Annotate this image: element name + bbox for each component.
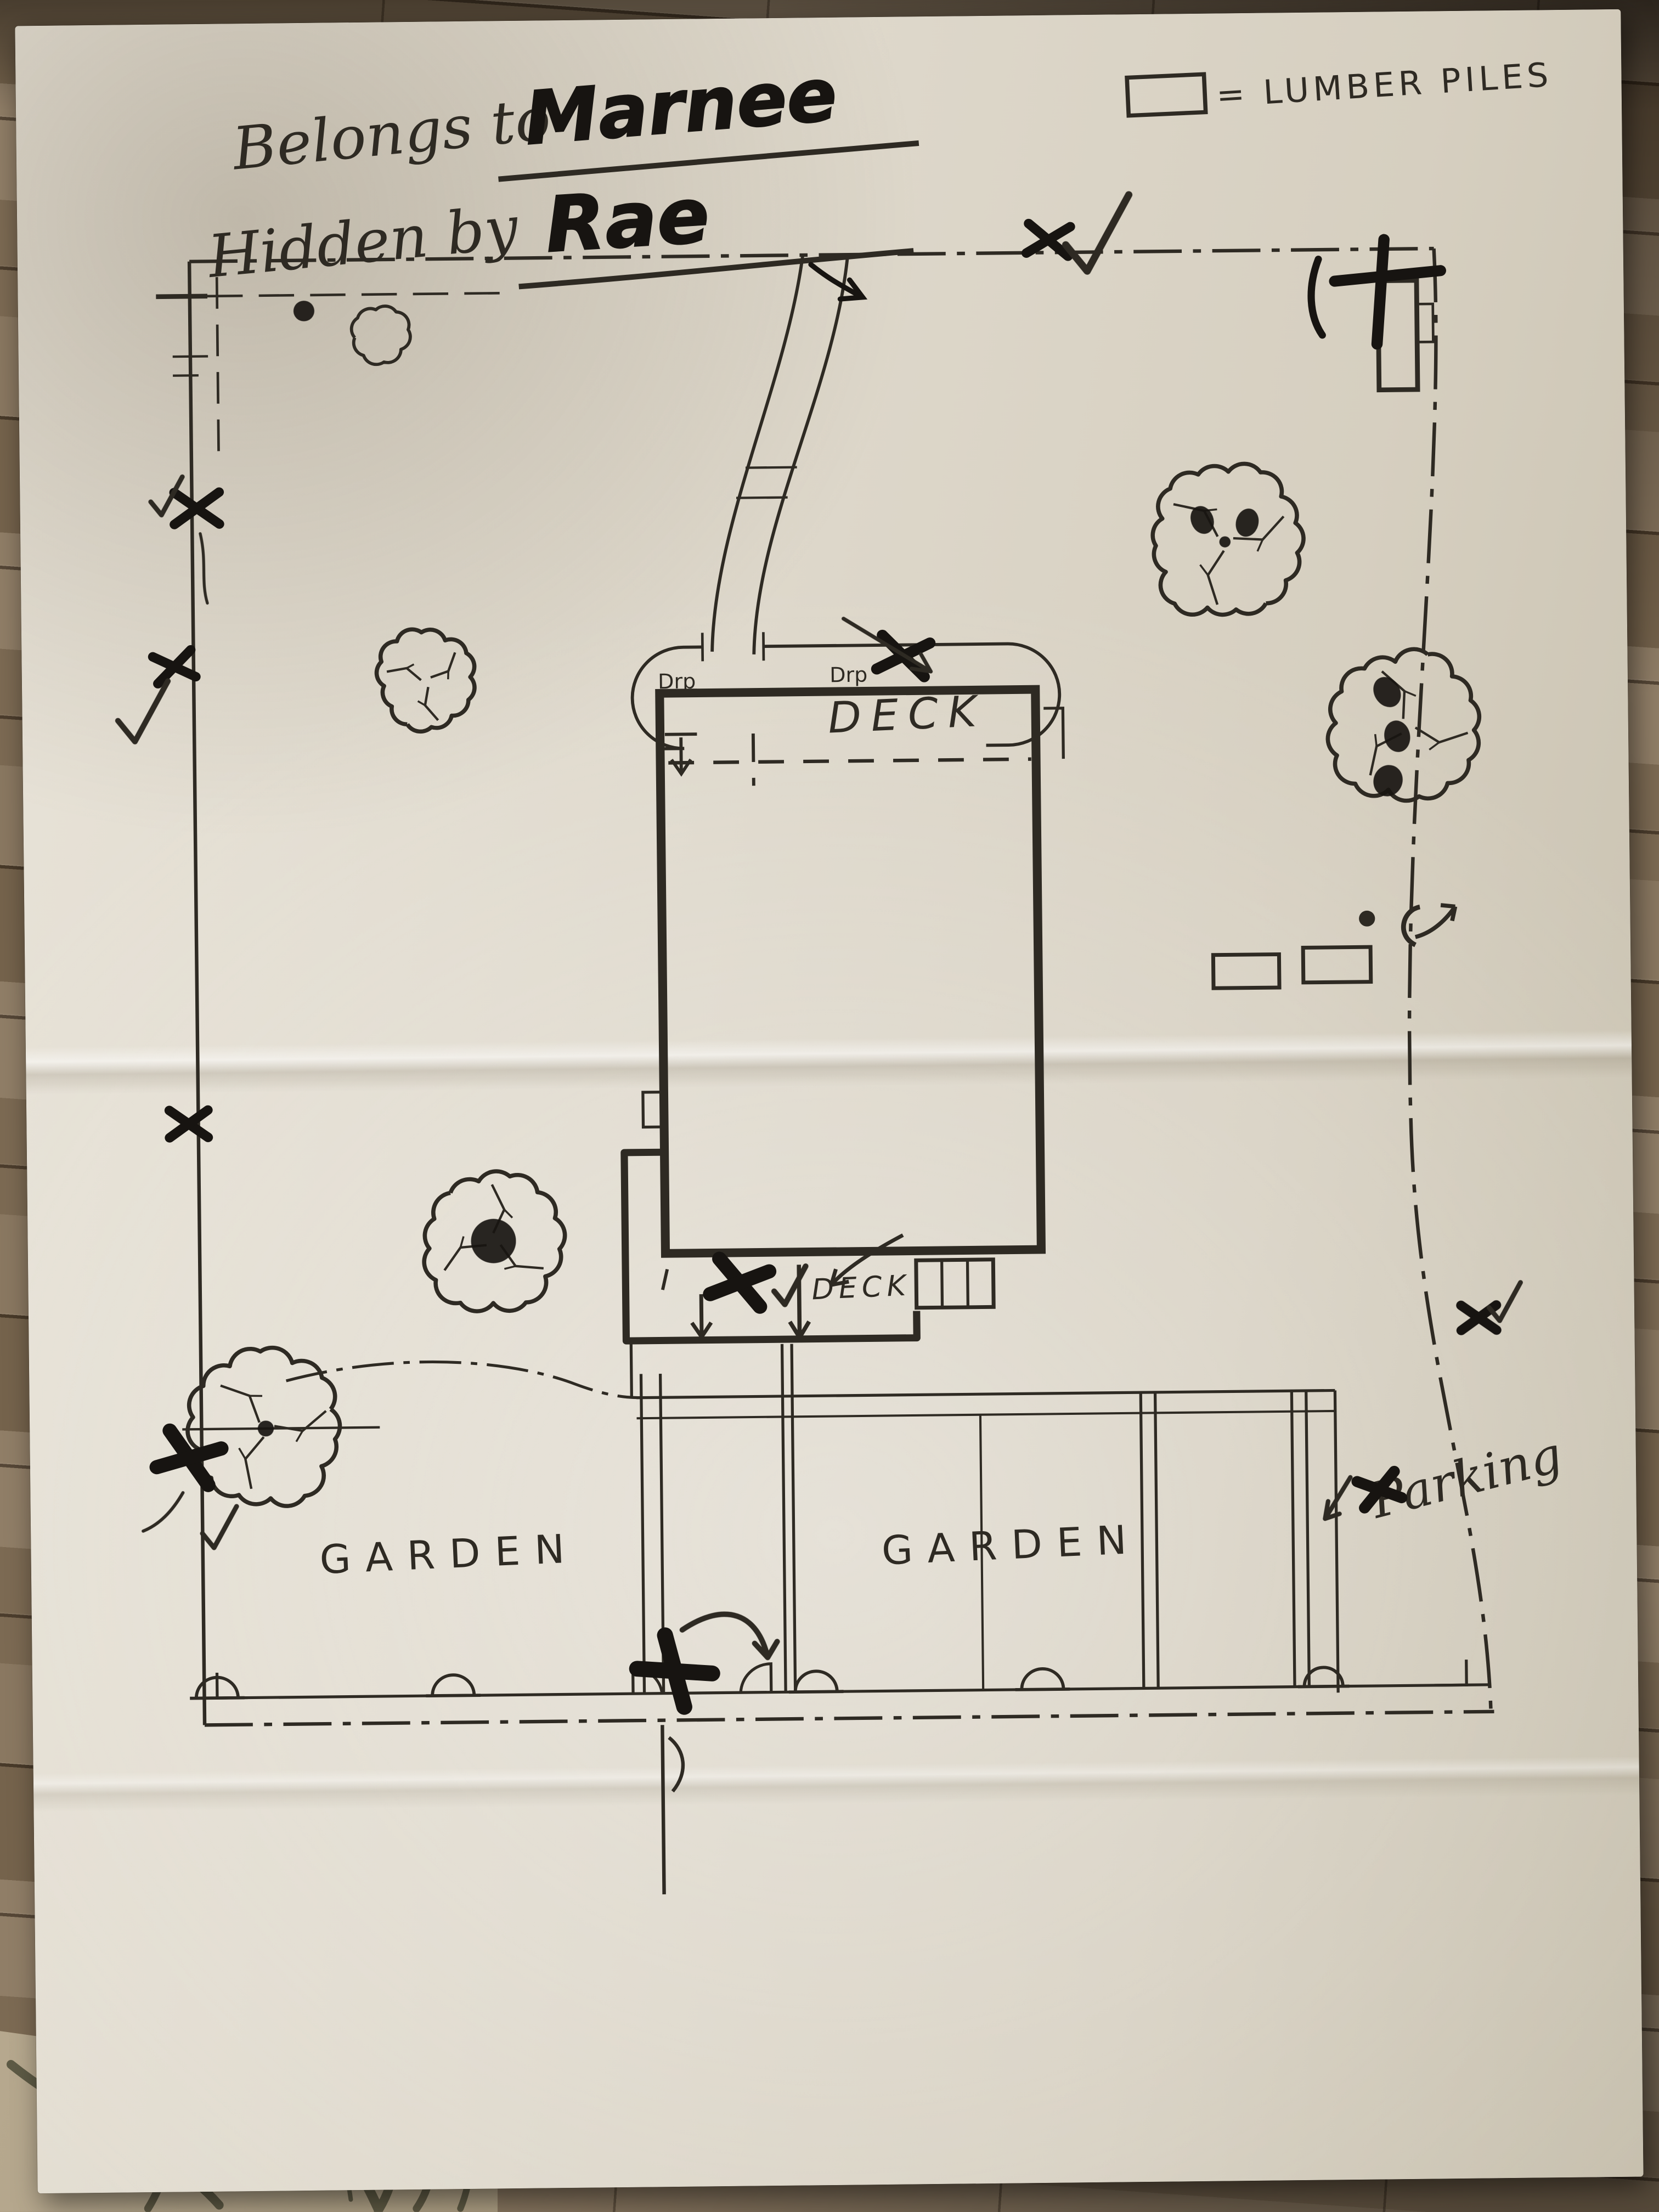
x-mark (153, 650, 196, 684)
tree-center-dot (1220, 537, 1231, 548)
path-right-edge (750, 255, 852, 654)
divider-5 (1292, 1391, 1310, 1687)
tree-blob (1233, 506, 1262, 539)
path-left-edge (708, 255, 807, 652)
lumber-pile-rect (1214, 955, 1280, 989)
path-arrow (811, 264, 862, 299)
landmark-dot (294, 301, 314, 321)
garden-left-label: GARDEN (319, 1526, 580, 1583)
corner-bracket-right (1435, 1660, 1467, 1685)
garden-beds (182, 1337, 1493, 1900)
belongs-to-text: Belongs to (229, 85, 554, 184)
property-boundary (172, 248, 1494, 1725)
deck-stairs (916, 1260, 994, 1308)
parking-left-edge (1335, 1391, 1339, 1693)
tree5-scribble (143, 1493, 184, 1531)
garden-shrub (426, 1675, 481, 1696)
tree-blob (1368, 672, 1407, 712)
inner-corner-dash-h (207, 293, 516, 296)
check-mark (774, 1266, 806, 1305)
lumber-piles-midright (1213, 905, 1457, 989)
divider-tick (753, 733, 754, 786)
deck-to-garden-line (631, 1341, 632, 1398)
marker-cross-horizontal (1335, 270, 1441, 281)
lumber-pile-topright (1311, 239, 1442, 391)
photo-of-site-plan: Belongs to Marnee Hidden by Rae = LUMBER… (0, 0, 1659, 2212)
site-plan-drawing: Belongs to Marnee Hidden by Rae = LUMBER… (15, 9, 1644, 2194)
tree (376, 629, 475, 732)
legend-label: = LUMBER PILES (1215, 55, 1554, 115)
curved-path (708, 255, 852, 654)
marker-cross-vertical (1376, 240, 1385, 344)
drop-label-2: Drp (830, 663, 868, 687)
divider-arrow (665, 734, 697, 774)
marker-hook (1311, 259, 1323, 336)
tree-blob (1382, 719, 1413, 754)
garden-shrub (1015, 1669, 1070, 1690)
check-mark (118, 681, 169, 742)
below-line-hook (669, 1737, 684, 1791)
garden-left-curve (286, 1360, 642, 1402)
x-mark (1026, 224, 1070, 257)
deck-dashed-divider (669, 759, 1032, 763)
curved-arrow (1415, 905, 1456, 937)
garden-right-label: GARDEN (881, 1517, 1142, 1574)
garden-top-line-1 (637, 1391, 1335, 1398)
x-mark (174, 492, 220, 524)
x-mark (637, 1635, 713, 1707)
door-arc-2 (741, 1664, 771, 1692)
deck-tick (663, 1269, 668, 1290)
x-mark (170, 1110, 208, 1138)
check-mark (202, 1506, 238, 1548)
site-plan-paper: Belongs to Marnee Hidden by Rae = LUMBER… (15, 9, 1644, 2194)
tree-center-dot (258, 1421, 274, 1437)
bottom-curved-arrow (682, 1614, 778, 1658)
lumber-pile-symbol (1127, 75, 1206, 116)
garden-shrub (1298, 1667, 1350, 1687)
lumber-pile-rect (1304, 947, 1372, 983)
shrub-cloud (352, 306, 411, 365)
small-dot (1359, 911, 1375, 927)
main-deck-outline (660, 690, 1042, 1254)
inner-corner-dash-v (217, 277, 219, 454)
deck-upper-label: DECK (827, 686, 987, 743)
boundary-left (189, 262, 205, 1725)
boundary-bottom (205, 1712, 1494, 1725)
x-mark (710, 1259, 770, 1307)
left-boundary-scribble (200, 534, 207, 603)
leading-dash (156, 296, 208, 297)
owner-name-text: Marnee (522, 52, 840, 161)
deck-lower-label: DECK (811, 1269, 911, 1307)
hidden-by-text: Hidden by (204, 194, 522, 291)
legend: = LUMBER PILES (1127, 55, 1554, 116)
main-deck: DECK (639, 686, 1042, 1254)
stair-treads (942, 1260, 968, 1308)
below-line-stroke (663, 1725, 664, 1895)
lower-deck: DECK (624, 1149, 995, 1398)
check-mark (1065, 195, 1130, 272)
garden-top-line-2 (637, 1411, 1335, 1418)
garden-shrub (789, 1671, 844, 1692)
divider-4 (1141, 1392, 1159, 1689)
parking-arrow (1325, 1477, 1351, 1519)
